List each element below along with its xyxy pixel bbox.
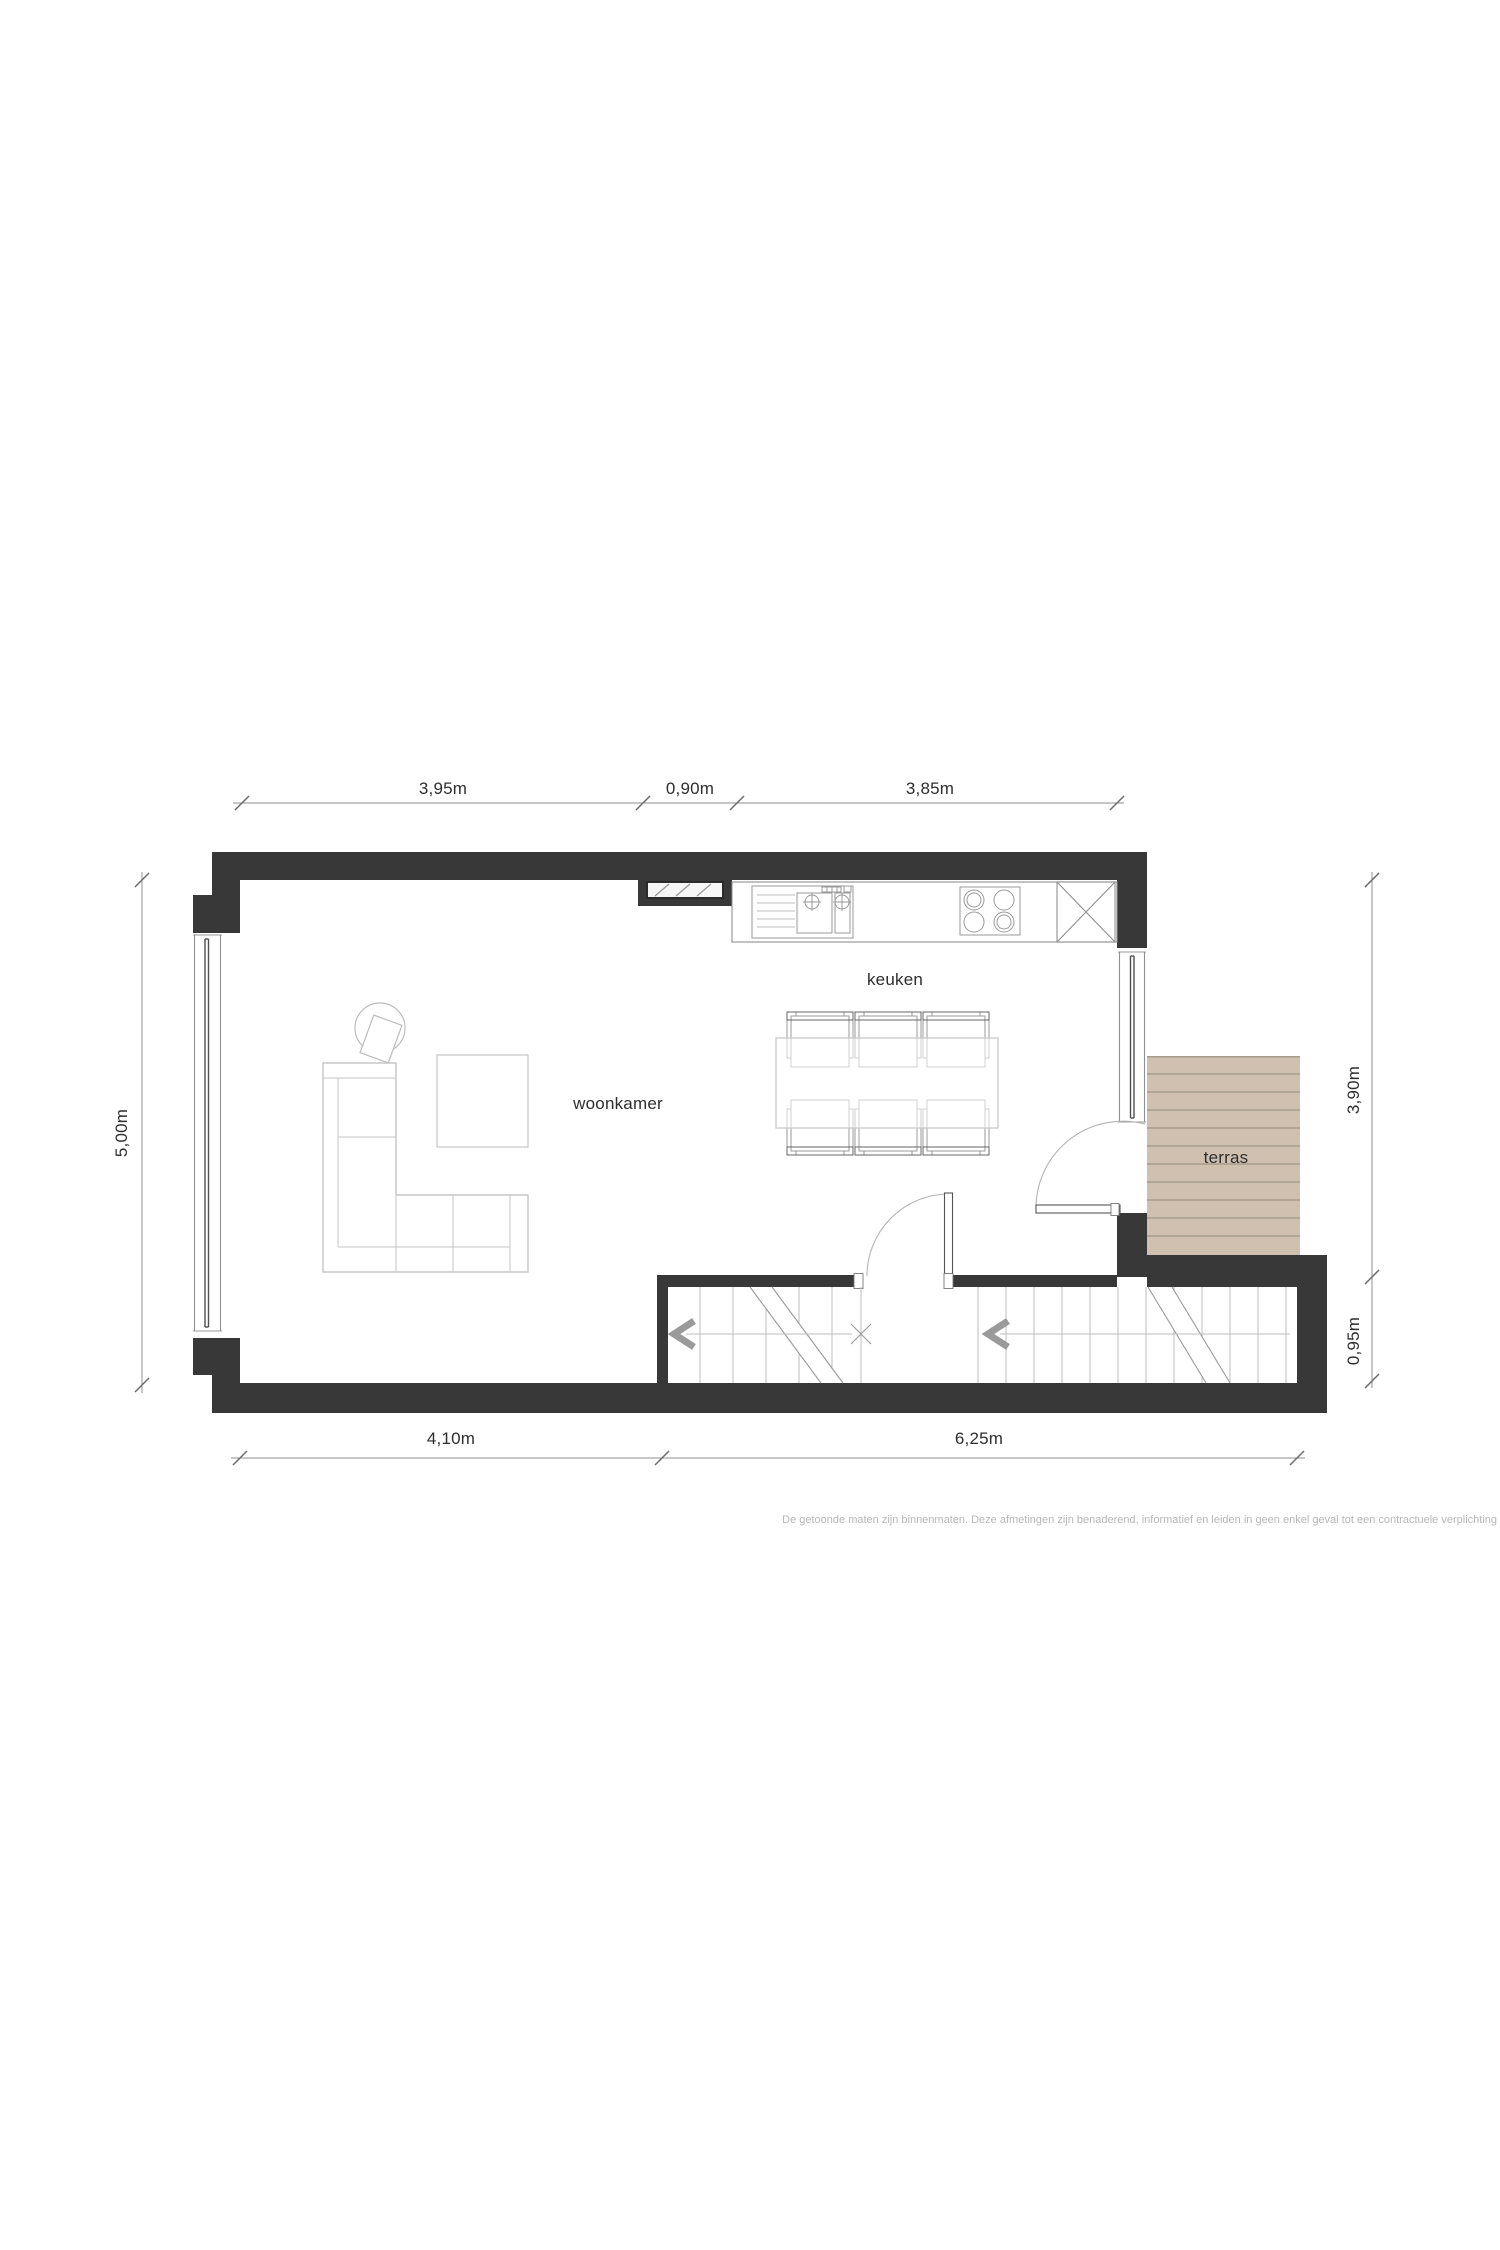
room-label-terrace: terras — [1204, 1148, 1249, 1168]
disclaimer-text: De getoonde maten zijn binnenmaten. Deze… — [782, 1514, 1497, 1526]
interior-door — [854, 1193, 953, 1289]
wall-hatch-window — [647, 882, 723, 898]
floorplan-drawing — [0, 0, 1500, 2250]
interior-walls — [657, 1275, 1117, 1383]
dim-label-right-1: 3,90m — [1344, 1066, 1364, 1114]
kitchen-counter — [732, 882, 1117, 942]
coffee-table — [437, 1055, 528, 1147]
dining-table — [776, 1038, 998, 1128]
dimension-line-left — [135, 872, 149, 1393]
dim-label-top-2: 0,90m — [666, 779, 714, 799]
room-label-kitchen: keuken — [867, 970, 923, 990]
dim-label-bottom-1: 4,10m — [427, 1429, 475, 1449]
left-window — [193, 935, 222, 1331]
dimension-line-right — [1365, 872, 1379, 1388]
dim-label-left-1: 5,00m — [112, 1109, 132, 1157]
room-label-living: woonkamer — [573, 1094, 663, 1114]
staircase-left — [674, 1287, 871, 1383]
dim-label-bottom-2: 6,25m — [955, 1429, 1003, 1449]
dimension-line-bottom — [231, 1451, 1305, 1465]
staircase-right — [978, 1287, 1290, 1383]
round-chair — [355, 1003, 405, 1063]
floorplan-page: 3,95m 0,90m 3,85m 4,10m 6,25m 5,00m 3,90… — [0, 0, 1500, 2250]
dim-label-top-1: 3,95m — [419, 779, 467, 799]
dim-label-right-2: 0,95m — [1344, 1317, 1364, 1365]
terrace-door — [1036, 1121, 1145, 1215]
right-window — [1118, 952, 1146, 1122]
dim-label-top-3: 3,85m — [906, 779, 954, 799]
